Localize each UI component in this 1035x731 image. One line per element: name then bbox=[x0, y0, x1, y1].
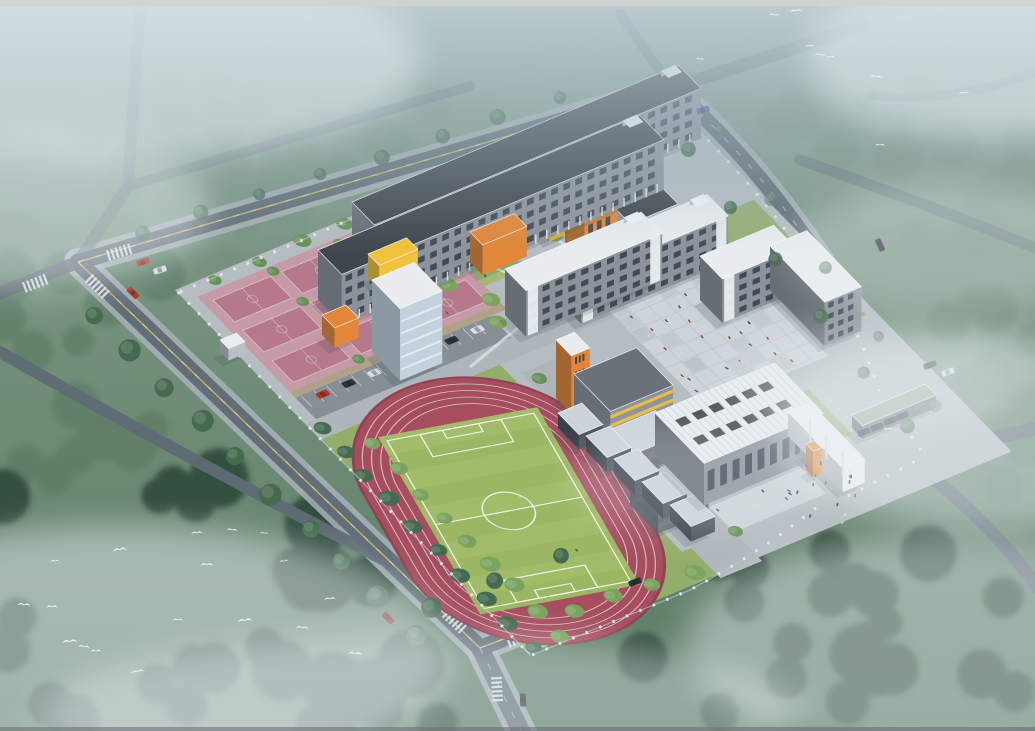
top-border-strip bbox=[0, 0, 1035, 6]
fog-patch bbox=[720, 320, 1020, 440]
tree-highlight bbox=[304, 522, 314, 532]
aerial-campus-render: Aerial bird's-eye architectural renderin… bbox=[0, 0, 1035, 731]
tree-highlight bbox=[262, 486, 274, 498]
bottom-border-strip bbox=[0, 727, 1035, 731]
fog-patch bbox=[570, 425, 830, 535]
render-canvas bbox=[0, 0, 1035, 731]
tree-blob bbox=[141, 478, 177, 514]
tree-highlight bbox=[555, 549, 564, 558]
tree-highlight bbox=[488, 574, 497, 583]
